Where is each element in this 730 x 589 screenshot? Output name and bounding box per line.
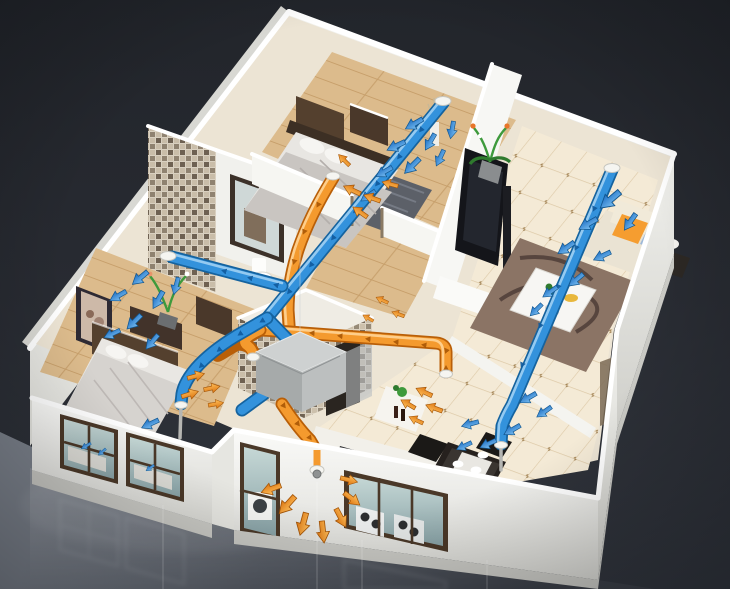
floor-stand-bedroom2	[180, 406, 181, 438]
ceiling-diffuser-master	[435, 97, 451, 106]
ceiling-diffuser-bedroom2	[160, 252, 176, 261]
ceiling-diffuser-living	[604, 164, 620, 173]
exhaust-grille-bedroom2	[247, 353, 260, 361]
scene-canvas	[0, 0, 730, 589]
exhaust-grille-master	[326, 172, 340, 180]
fruit-bowl	[564, 294, 578, 302]
hvac-apartment-render	[0, 0, 730, 589]
shower-glass	[346, 340, 372, 408]
bathroom-window	[240, 442, 280, 542]
exhaust-grille-kitchen	[440, 370, 453, 378]
